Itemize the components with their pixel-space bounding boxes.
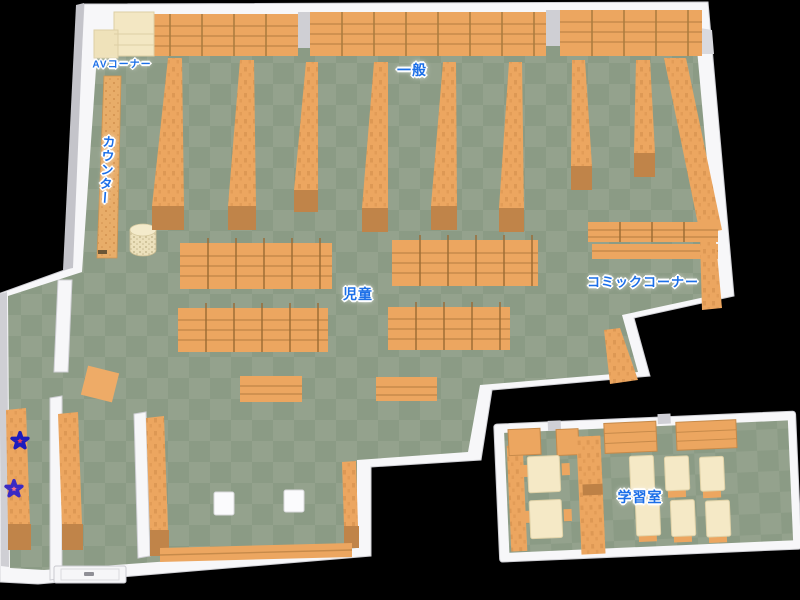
study-cabinet — [508, 428, 541, 455]
counter-mark — [98, 250, 107, 254]
wall-shelf — [58, 412, 82, 526]
study-room — [494, 408, 800, 562]
study-desk — [699, 456, 724, 491]
study-desk — [705, 500, 731, 537]
study-cabinet — [556, 429, 579, 456]
study-desk — [629, 455, 654, 490]
door-handle — [84, 572, 94, 576]
study-desk — [670, 500, 696, 537]
study-desk — [664, 456, 689, 491]
study-desk — [635, 499, 661, 536]
wall-gap — [546, 10, 560, 46]
reading-table — [284, 490, 304, 512]
kids-low-shelf — [376, 377, 437, 401]
wall-shelf — [342, 461, 358, 527]
wall-shelf — [6, 408, 30, 528]
entrance-door — [54, 566, 126, 583]
study-shelf — [604, 421, 657, 453]
study-shelf — [676, 420, 737, 451]
kids-low-shelf — [240, 376, 302, 402]
reading-table — [214, 492, 234, 515]
wall-shade-topright — [700, 28, 714, 54]
library-floor-map: AVコーナー 一般 カウンター 児童 コミックコーナー 学習室 — [0, 0, 800, 600]
floor-map-canvas — [0, 0, 800, 600]
wall-gap — [298, 12, 310, 48]
wall-shelf-band — [138, 10, 702, 56]
study-desk — [529, 499, 563, 538]
study-desk — [527, 455, 561, 492]
door-gap — [657, 414, 670, 425]
